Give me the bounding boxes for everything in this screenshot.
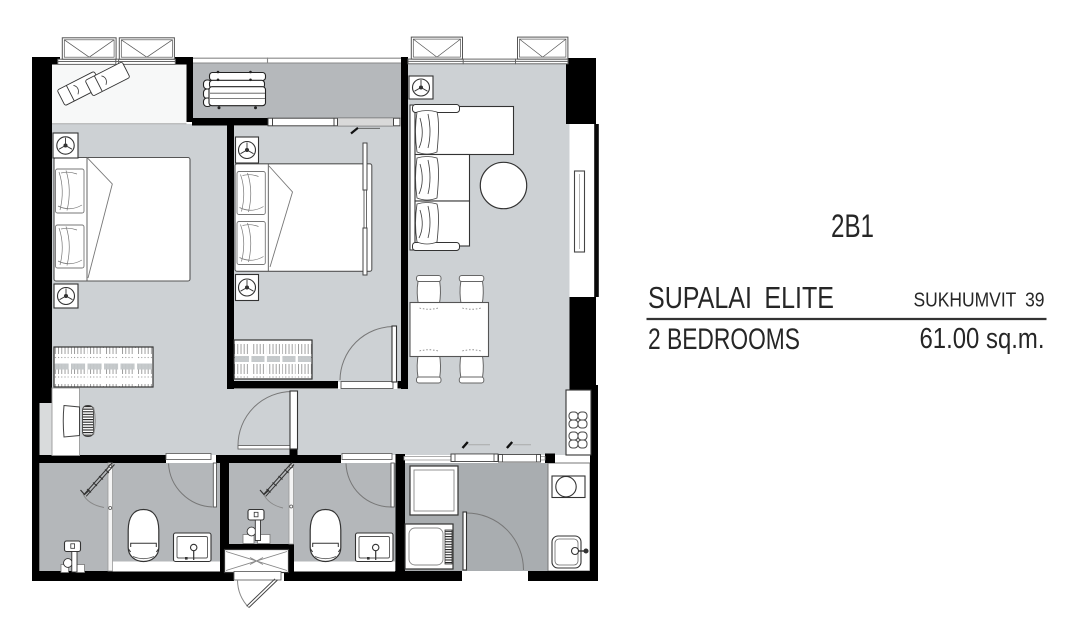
svg-text:2 BEDROOMS: 2 BEDROOMS (648, 323, 800, 356)
svg-text:SUKHUMVIT 39: SUKHUMVIT 39 (914, 289, 1045, 312)
svg-text:SUPALAI ELITE: SUPALAI ELITE (648, 280, 834, 315)
svg-text:2B1: 2B1 (831, 208, 874, 244)
svg-text:61.00 sq.m.: 61.00 sq.m. (920, 323, 1045, 355)
